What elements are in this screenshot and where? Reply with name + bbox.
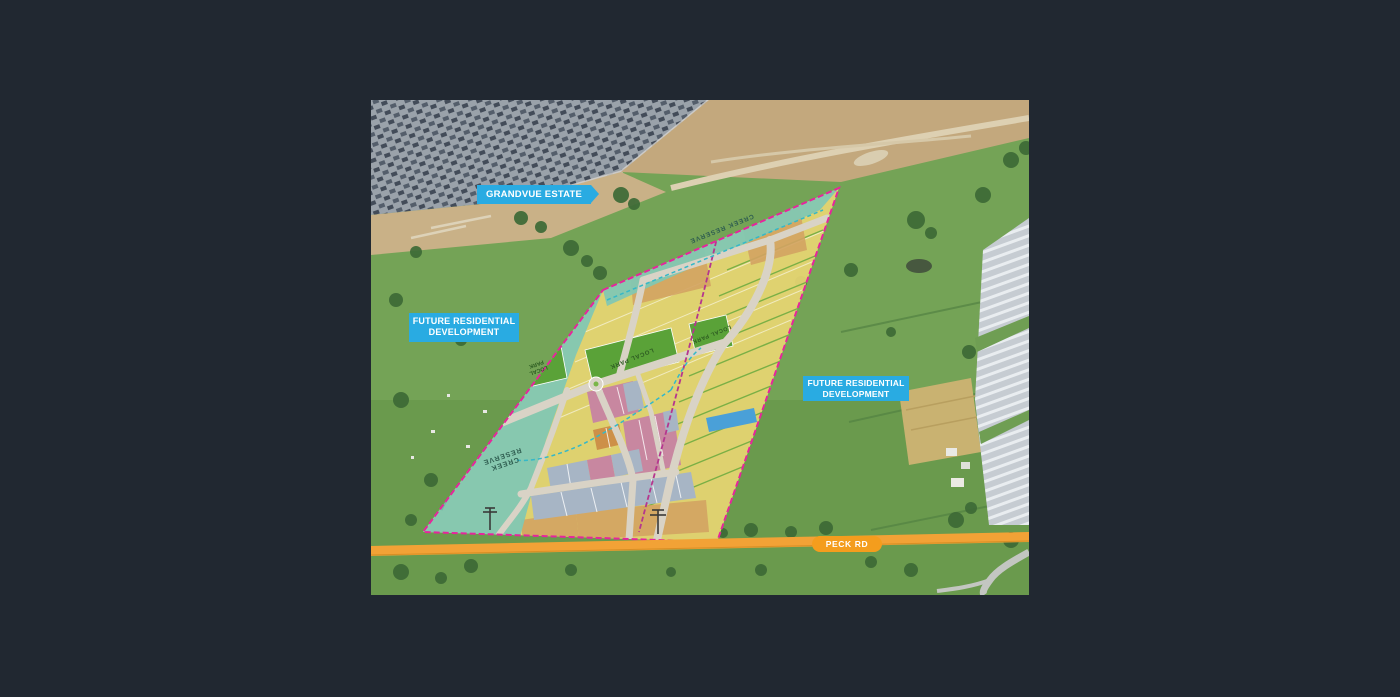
callout-future-residential-left: FUTURE RESIDENTIAL DEVELOPMENT (409, 313, 519, 342)
masterplan-svg: CREEK RESERVE CREEK RESERVE LOCAL PARK L… (371, 100, 1029, 595)
page-background: { "image": { "description": "Aerial mast… (0, 0, 1400, 697)
callout-peck-rd: PECK RD (812, 536, 882, 552)
pond (906, 259, 932, 273)
callout-grandvue-estate: GRANDVUE ESTATE (477, 185, 591, 204)
peck-rd-label: PECK RD (826, 539, 868, 549)
aerial-photo: CREEK RESERVE CREEK RESERVE LOCAL PARK L… (371, 100, 1029, 595)
callout-arrow-right-icon (591, 185, 599, 203)
callout-future-residential-right: FUTURE RESIDENTIAL DEVELOPMENT (803, 376, 909, 401)
dry-field (899, 378, 981, 465)
grandvue-estate-label: GRANDVUE ESTATE (486, 189, 582, 200)
future-residential-left-label: FUTURE RESIDENTIAL DEVELOPMENT (413, 316, 516, 337)
future-residential-right-label: FUTURE RESIDENTIAL DEVELOPMENT (807, 378, 904, 399)
